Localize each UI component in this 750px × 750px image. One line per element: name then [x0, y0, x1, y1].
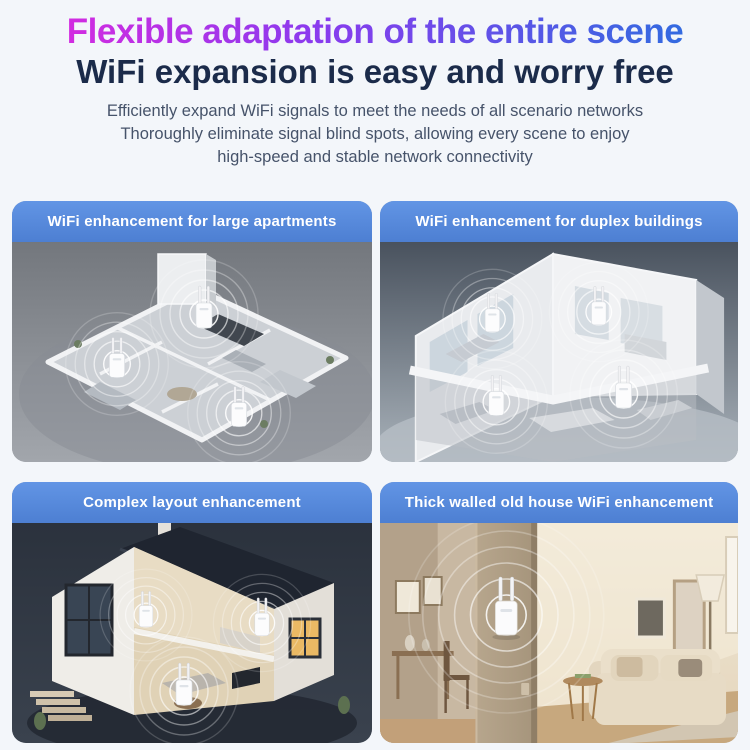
duplex-scene-image	[380, 242, 738, 462]
description-line-3: high-speed and stable network connectivi…	[0, 146, 750, 169]
promo-page: Flexible adaptation of the entire scene …	[0, 0, 750, 750]
apartment-scene-image	[12, 242, 372, 462]
panel-label: WiFi enhancement for large apartments	[48, 213, 337, 230]
panel-label: WiFi enhancement for duplex buildings	[415, 213, 702, 230]
scenario-grid: WiFi enhancement for large apartments	[12, 201, 738, 743]
panel-label: Thick walled old house WiFi enhancement	[405, 494, 714, 511]
old-house-scene-image	[380, 523, 738, 743]
panel-header-old-house: Thick walled old house WiFi enhancement	[380, 482, 738, 523]
old-house-photo-illustration	[380, 523, 738, 743]
panel-large-apartments: WiFi enhancement for large apartments	[12, 201, 372, 462]
description-line-1: Efficiently expand WiFi signals to meet …	[0, 100, 750, 123]
panel-header-duplex-buildings: WiFi enhancement for duplex buildings	[380, 201, 738, 242]
description: Efficiently expand WiFi signals to meet …	[0, 100, 750, 169]
description-line-2: Thoroughly eliminate signal blind spots,…	[0, 123, 750, 146]
panel-header-large-apartments: WiFi enhancement for large apartments	[12, 201, 372, 242]
panel-header-complex-layout: Complex layout enhancement	[12, 482, 372, 523]
panel-label: Complex layout enhancement	[83, 494, 301, 511]
page-title: Flexible adaptation of the entire scene	[0, 0, 750, 52]
house-scene-image	[12, 523, 372, 743]
apartment-illustration	[12, 242, 372, 462]
duplex-illustration	[380, 242, 738, 462]
panel-complex-layout: Complex layout enhancement	[12, 482, 372, 743]
page-subtitle: WiFi expansion is easy and worry free	[0, 53, 750, 91]
panel-duplex-buildings: WiFi enhancement for duplex buildings	[380, 201, 738, 462]
house-illustration	[12, 523, 372, 743]
panel-old-house: Thick walled old house WiFi enhancement	[380, 482, 738, 743]
